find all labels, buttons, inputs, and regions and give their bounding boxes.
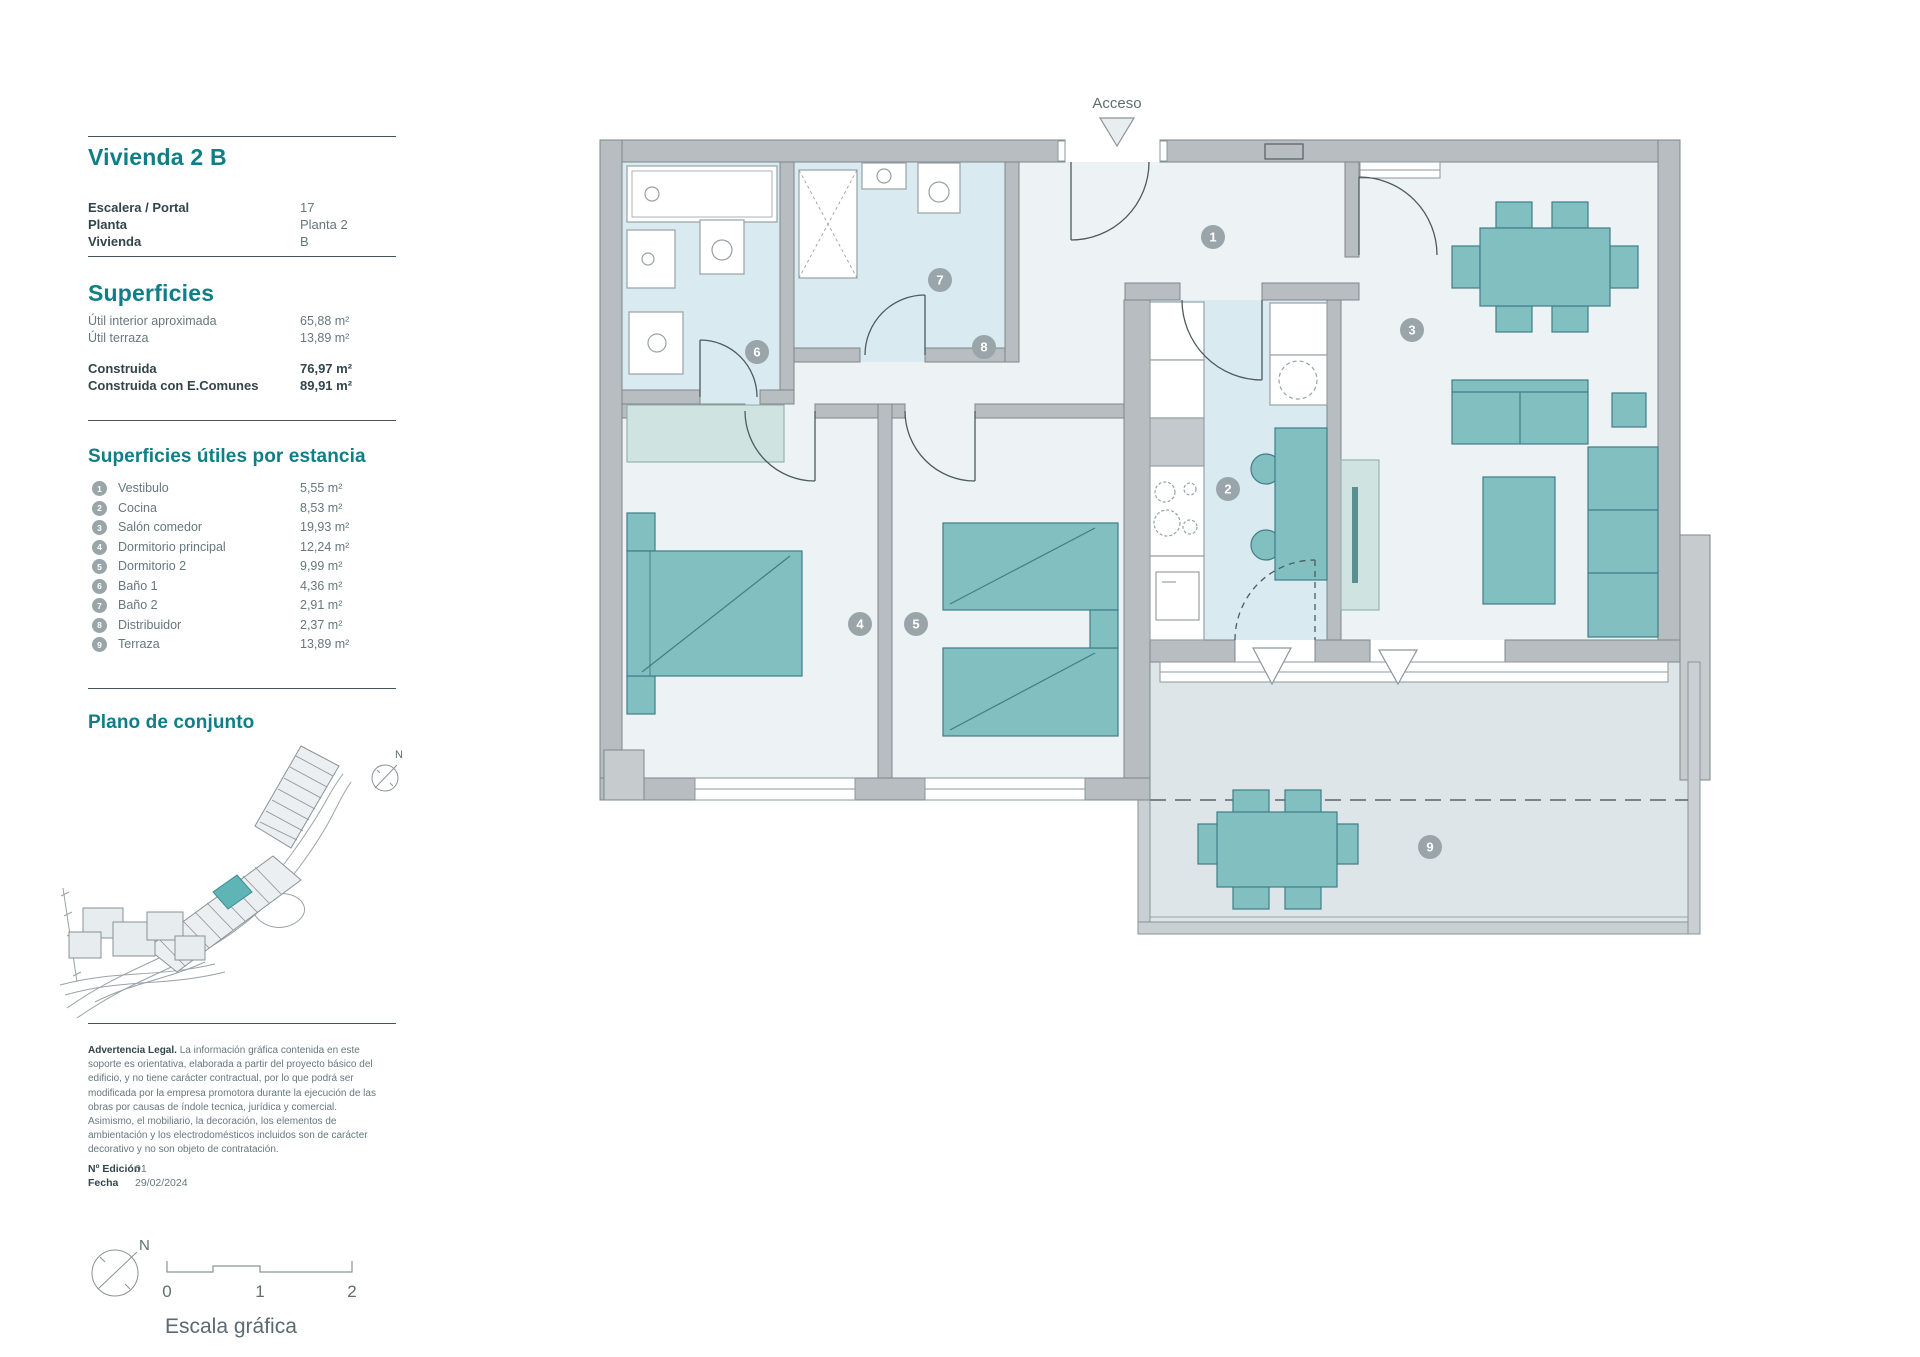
list-item: 7 Baño 2 2,91 m² [88, 597, 396, 617]
room-area: 8,53 m² [300, 501, 342, 515]
legal-disclaimer: Advertencia Legal. La información gráfic… [88, 1044, 385, 1158]
room-list: 1 Vestibulo 5,55 m² 2 Cocina 8,53 m² 3 S… [88, 480, 396, 656]
room-badge-9: 9 [1418, 835, 1442, 859]
floorplan-document: Vivienda 2 B Escalera / Portal 17 Planta… [0, 0, 1920, 1357]
svg-text:6: 6 [753, 345, 760, 360]
room-number-badge: 9 [92, 637, 107, 652]
site-plan-drawing: N [55, 740, 405, 1030]
info-label: Escalera / Portal [88, 200, 189, 215]
scale-mark: 1 [255, 1282, 264, 1301]
list-item: 5 Dormitorio 2 9,99 m² [88, 558, 396, 578]
svg-text:7: 7 [936, 273, 943, 288]
info-value: 17 [300, 200, 314, 215]
dining-table [1480, 228, 1610, 306]
scale-caption: Escala gráfica [165, 1315, 297, 1338]
svg-text:3: 3 [1408, 323, 1415, 338]
chaise-sofa [1588, 447, 1658, 637]
section-heading-estancias: Superficies útiles por estancia [88, 446, 366, 468]
date-label: Fecha [88, 1177, 118, 1189]
info-value: Planta 2 [300, 217, 348, 232]
room-badge-3: 3 [1400, 318, 1424, 342]
table-row: Construida 76,97 m² [88, 361, 396, 378]
list-item: 2 Cocina 8,53 m² [88, 500, 396, 520]
kitchen-table [1275, 428, 1327, 580]
coffee-table [1483, 477, 1555, 604]
north-label: N [139, 1237, 150, 1254]
room-number-badge: 8 [92, 618, 107, 633]
terrace-table [1217, 812, 1337, 887]
north-compass-icon: N [92, 1237, 150, 1296]
edition-value: 01 [135, 1163, 147, 1175]
room-number-badge: 7 [92, 598, 107, 613]
table-row: Escalera / Portal 17 [88, 200, 396, 217]
room-area: 4,36 m² [300, 579, 342, 593]
scale-mark: 2 [347, 1282, 356, 1301]
room-number-badge: 1 [92, 481, 107, 496]
area-value: 65,88 m² [300, 314, 349, 328]
room-area: 2,91 m² [300, 598, 342, 612]
area-label: Útil terraza [88, 331, 148, 345]
room-badge-4: 4 [848, 612, 872, 636]
access-marker: Acceso [1092, 95, 1141, 146]
access-label: Acceso [1092, 95, 1141, 112]
table-row: Vivienda B [88, 234, 396, 251]
table-row: Planta Planta 2 [88, 217, 396, 234]
superficies-table: Útil interior aproximada 65,88 m² Útil t… [88, 314, 396, 348]
room-label: Dormitorio principal [118, 540, 226, 554]
north-compass-icon: N [372, 749, 403, 791]
section-heading-siteplan: Plano de conjunto [88, 712, 254, 734]
scale-mark: 0 [162, 1282, 171, 1301]
room-badge-8: 8 [972, 335, 996, 359]
side-table [1612, 393, 1646, 427]
room-badge-1: 1 [1201, 225, 1225, 249]
divider [88, 688, 396, 689]
table-row: Construida con E.Comunes 89,91 m² [88, 378, 396, 395]
room-label: Dormitorio 2 [118, 559, 186, 573]
area-label: Construida [88, 361, 157, 376]
unit-info-table: Escalera / Portal 17 Planta Planta 2 Viv… [88, 200, 396, 251]
svg-text:1: 1 [1209, 230, 1216, 245]
room-label: Salón comedor [118, 520, 202, 534]
list-item: 4 Dormitorio principal 12,24 m² [88, 539, 396, 559]
room-number-badge: 4 [92, 540, 107, 555]
list-item: 1 Vestibulo 5,55 m² [88, 480, 396, 500]
table-row: Útil terraza 13,89 m² [88, 331, 396, 348]
legal-body: La información gráfica contenida en este… [88, 1045, 376, 1155]
room-number-badge: 6 [92, 579, 107, 594]
access-arrow-icon [1100, 118, 1134, 146]
list-item: 9 Terraza 13,89 m² [88, 636, 396, 656]
area-value: 89,91 m² [300, 378, 352, 393]
svg-text:4: 4 [856, 617, 864, 632]
table-row: Nº Edición 01 [88, 1163, 388, 1177]
room-label: Terraza [118, 637, 160, 651]
room-label: Baño 2 [118, 598, 158, 612]
info-label: Vivienda [88, 234, 141, 249]
single-bed [943, 523, 1118, 610]
room-number-badge: 3 [92, 520, 107, 535]
svg-text:5: 5 [912, 617, 919, 632]
tv-cabinet [1341, 460, 1379, 610]
floor-plan: Acceso 1 2 3 4 [580, 70, 1740, 960]
legal-title: Advertencia Legal. [88, 1045, 177, 1056]
section-heading-superficies: Superficies [88, 280, 214, 307]
graphic-scale: N 0 1 2 Escala gráfica [55, 1225, 395, 1355]
svg-text:8: 8 [980, 340, 987, 355]
divider [88, 136, 396, 137]
wardrobe [627, 405, 784, 462]
room-label: Vestibulo [118, 481, 169, 495]
scale-bar: 0 1 2 Escala gráfica [162, 1261, 356, 1338]
list-item: 8 Distribuidor 2,37 m² [88, 617, 396, 637]
room-label: Baño 1 [118, 579, 158, 593]
date-value: 29/02/2024 [135, 1177, 188, 1189]
edition-info: Nº Edición 01 Fecha 29/02/2024 [88, 1163, 388, 1191]
room-badge-6: 6 [745, 340, 769, 364]
single-bed [943, 648, 1118, 736]
site-buildings [69, 746, 339, 972]
table-row: Fecha 29/02/2024 [88, 1177, 388, 1191]
north-label: N [395, 749, 403, 761]
room-number-badge: 5 [92, 559, 107, 574]
area-value: 76,97 m² [300, 361, 352, 376]
room-area: 12,24 m² [300, 540, 349, 554]
room-label: Cocina [118, 501, 157, 515]
divider [88, 420, 396, 421]
room-area: 2,37 m² [300, 618, 342, 632]
room-badge-5: 5 [904, 612, 928, 636]
area-label: Útil interior aproximada [88, 314, 217, 328]
list-item: 3 Salón comedor 19,93 m² [88, 519, 396, 539]
svg-text:9: 9 [1426, 840, 1433, 855]
room-area: 13,89 m² [300, 637, 349, 651]
tv-screen [1352, 487, 1358, 583]
superficies-totals: Construida 76,97 m² Construida con E.Com… [88, 361, 396, 395]
list-item: 6 Baño 1 4,36 m² [88, 578, 396, 598]
room-badge-7: 7 [928, 268, 952, 292]
divider [88, 256, 396, 257]
area-value: 13,89 m² [300, 331, 349, 345]
room-label: Distribuidor [118, 618, 181, 632]
page-title: Vivienda 2 B [88, 144, 227, 171]
info-label: Planta [88, 217, 127, 232]
area-label: Construida con E.Comunes [88, 378, 258, 393]
edition-label: Nº Edición [88, 1163, 140, 1175]
svg-text:2: 2 [1224, 482, 1231, 497]
info-value: B [300, 234, 309, 249]
room-area: 9,99 m² [300, 559, 342, 573]
table-row: Útil interior aproximada 65,88 m² [88, 314, 396, 331]
divider [88, 1023, 396, 1024]
room-number-badge: 2 [92, 501, 107, 516]
room-area: 19,93 m² [300, 520, 349, 534]
room-area: 5,55 m² [300, 481, 342, 495]
double-bed [627, 551, 802, 676]
room-badge-2: 2 [1216, 477, 1240, 501]
